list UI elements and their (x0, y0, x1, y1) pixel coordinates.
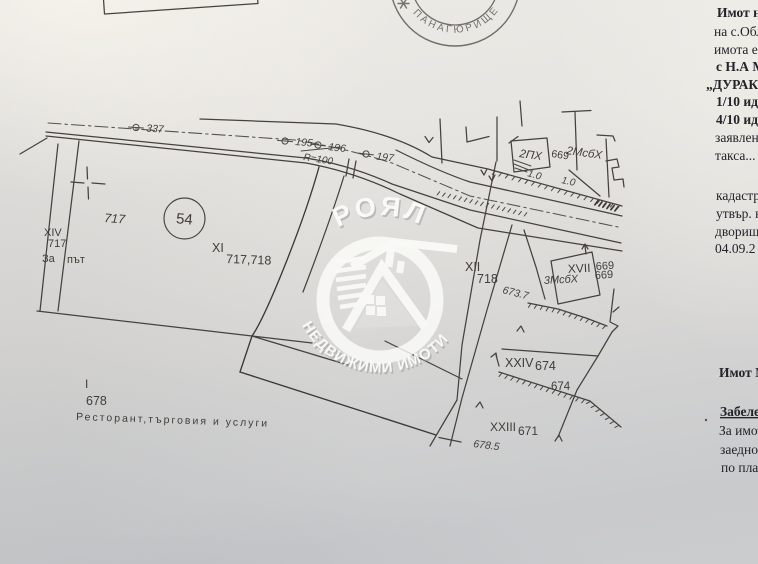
svg-text:3МсбХ: 3МсбХ (544, 273, 580, 287)
svg-text:За: За (42, 253, 56, 265)
svg-text:такса...: такса... (715, 148, 756, 163)
svg-text:717: 717 (104, 211, 127, 226)
svg-text:2МсбХ: 2МсбХ (565, 145, 604, 162)
svg-text:1/10 ид: 1/10 ид (716, 94, 758, 109)
svg-text:R=100: R=100 (303, 152, 335, 168)
svg-text:ПАНАГЮРИЩЕ: ПАНАГЮРИЩЕ (411, 4, 502, 36)
svg-text:път: път (67, 254, 85, 266)
svg-text:717,718: 717,718 (226, 252, 272, 268)
svg-text:XXIII: XXIII (490, 420, 516, 434)
svg-text:195: 195 (295, 136, 314, 149)
svg-text:I: I (85, 377, 88, 391)
svg-text:Имот №: Имот № (719, 365, 758, 380)
svg-text:Забеле: Забеле (720, 404, 758, 419)
svg-text:За имот: За имот (719, 423, 758, 438)
svg-text:669: 669 (594, 269, 613, 282)
svg-text:1.0: 1.0 (560, 175, 576, 189)
svg-text:197: 197 (376, 151, 396, 165)
svg-text:196: 196 (328, 141, 347, 155)
svg-text:717: 717 (48, 238, 66, 250)
svg-text:718: 718 (477, 272, 498, 286)
svg-text:54: 54 (175, 210, 193, 228)
svg-text:04.09.2: 04.09.2 (715, 241, 756, 256)
svg-text:XI: XI (212, 241, 224, 255)
svg-text:673.7: 673.7 (501, 284, 531, 302)
svg-text:кадастр: кадастр (716, 188, 758, 203)
svg-text:заедно: заедно (720, 442, 758, 457)
svg-text:674: 674 (535, 359, 556, 373)
svg-text:„ДУРАК: „ДУРАК (706, 77, 758, 92)
svg-text:с Н.А М: с Н.А М (716, 59, 758, 74)
svg-text:имота е: имота е (714, 42, 758, 57)
svg-text:Ресторант,търговия и услуги: Ресторант,търговия и услуги (76, 411, 269, 430)
svg-text:2ПХ: 2ПХ (518, 148, 544, 163)
svg-text:XXIV: XXIV (505, 356, 534, 370)
svg-text:678.5: 678.5 (473, 438, 501, 453)
svg-text:утвър. н: утвър. н (716, 206, 758, 221)
svg-text:671: 671 (518, 424, 538, 438)
svg-text:337: 337 (146, 123, 165, 136)
svg-text:на с.Обл: на с.Обл (714, 24, 758, 39)
svg-text:заявлен: заявлен (715, 130, 758, 145)
svg-text:678: 678 (86, 394, 107, 408)
svg-text:Имот н: Имот н (717, 5, 758, 20)
svg-text:по план: по план (721, 460, 758, 475)
svg-text:дворищн: дворищн (715, 224, 758, 239)
svg-text:4/10 ид: 4/10 ид (716, 112, 758, 127)
